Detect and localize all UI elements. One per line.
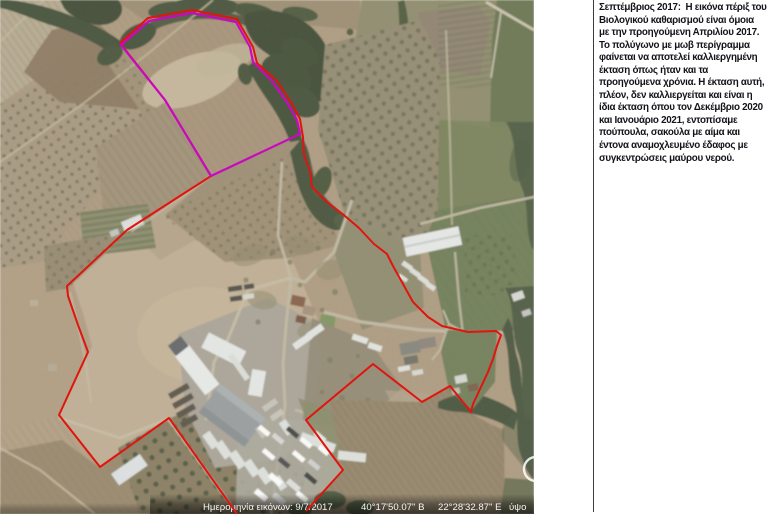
svg-text:40°17'50.07" Β: 40°17'50.07" Β — [361, 502, 425, 513]
svg-text:ύψο: ύψο — [509, 502, 526, 513]
svg-text:22°28'32.87" Ε: 22°28'32.87" Ε — [438, 502, 502, 513]
